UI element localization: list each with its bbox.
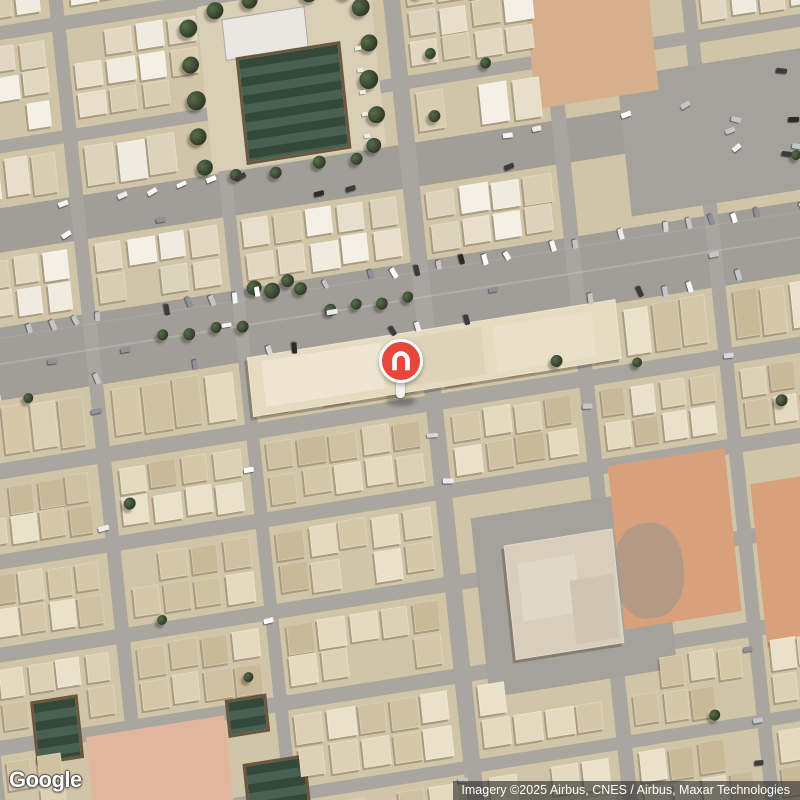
building <box>171 670 201 703</box>
building <box>398 788 428 800</box>
parked-car <box>788 117 799 122</box>
building <box>412 600 441 633</box>
building <box>361 734 392 768</box>
building <box>191 543 219 575</box>
building <box>316 615 347 649</box>
building <box>459 181 490 213</box>
building <box>19 40 46 70</box>
parked-car <box>95 312 100 322</box>
building <box>242 215 271 247</box>
parked-car <box>754 760 763 766</box>
building <box>405 540 436 572</box>
building <box>13 253 40 285</box>
building <box>371 514 401 548</box>
building <box>117 139 149 183</box>
building <box>109 84 138 112</box>
building <box>326 706 357 739</box>
building <box>393 731 424 765</box>
building <box>189 225 220 258</box>
building <box>414 633 443 667</box>
building <box>204 666 235 701</box>
building <box>119 464 148 494</box>
building <box>730 0 757 15</box>
building <box>94 240 123 272</box>
building <box>330 739 361 774</box>
building <box>431 220 462 252</box>
building <box>483 404 513 436</box>
building <box>679 294 709 346</box>
building <box>181 452 209 484</box>
building <box>143 80 172 108</box>
building <box>426 188 456 219</box>
building <box>297 435 328 466</box>
building <box>172 374 204 427</box>
building <box>512 76 542 121</box>
building <box>213 448 243 479</box>
tree <box>210 321 222 334</box>
building <box>160 263 189 294</box>
building <box>744 397 771 427</box>
building <box>389 696 420 731</box>
building <box>451 411 481 442</box>
building <box>700 0 728 22</box>
building <box>545 705 577 738</box>
building <box>22 68 50 96</box>
building <box>280 560 311 593</box>
building <box>664 688 691 722</box>
building <box>85 651 111 683</box>
building <box>310 240 341 273</box>
building <box>639 748 668 783</box>
building <box>396 453 426 485</box>
building <box>493 210 522 241</box>
tree <box>424 47 436 60</box>
building <box>790 279 800 329</box>
building <box>486 438 515 470</box>
building <box>481 716 512 748</box>
building <box>338 517 368 549</box>
parked-car <box>503 132 514 138</box>
building <box>454 443 484 475</box>
building <box>740 365 768 397</box>
tree <box>708 708 720 721</box>
building <box>479 81 511 125</box>
building <box>405 0 434 6</box>
mosque-roof-detail <box>570 574 620 645</box>
building <box>68 0 98 5</box>
building <box>336 201 365 233</box>
building <box>9 482 36 515</box>
building <box>158 229 186 259</box>
building <box>523 173 554 206</box>
building <box>278 243 307 274</box>
building <box>0 0 13 19</box>
building <box>163 579 192 612</box>
building <box>78 89 108 117</box>
building <box>373 228 403 261</box>
marker-circle[interactable] <box>379 339 423 383</box>
google-logo[interactable]: Google <box>9 767 82 793</box>
building <box>4 155 31 197</box>
building <box>78 594 105 627</box>
tree <box>350 297 362 310</box>
building <box>362 424 391 456</box>
building <box>0 517 9 547</box>
building <box>38 477 66 509</box>
building <box>513 711 544 745</box>
building <box>16 286 43 316</box>
building <box>158 547 189 579</box>
building <box>630 383 656 415</box>
building <box>660 377 686 408</box>
building <box>275 529 306 561</box>
building <box>717 646 744 680</box>
building <box>439 4 468 34</box>
building <box>147 132 179 175</box>
building <box>0 289 14 319</box>
tree <box>479 56 491 69</box>
building <box>87 684 116 717</box>
building <box>0 44 16 73</box>
building <box>663 409 689 441</box>
building <box>246 250 276 281</box>
building <box>287 621 316 655</box>
building <box>370 197 399 229</box>
tree <box>188 127 207 147</box>
building <box>669 745 696 781</box>
building <box>75 60 104 89</box>
building <box>505 24 535 53</box>
building <box>491 179 521 211</box>
building <box>548 428 579 459</box>
building <box>478 681 508 716</box>
building <box>225 571 256 606</box>
parked-car <box>292 342 297 354</box>
building <box>204 371 237 423</box>
parked-car <box>48 358 58 364</box>
home-icon <box>388 348 414 374</box>
parked-car <box>442 478 453 483</box>
building <box>111 385 143 437</box>
building <box>26 100 52 130</box>
building <box>28 661 57 694</box>
building <box>420 690 450 723</box>
building <box>659 654 685 687</box>
building <box>463 215 492 246</box>
building <box>605 420 633 451</box>
building <box>298 746 327 778</box>
parked-car <box>663 221 669 231</box>
building <box>106 55 137 84</box>
parked-car <box>583 404 593 409</box>
building <box>768 360 796 391</box>
building <box>231 628 261 661</box>
garden-court <box>225 694 270 738</box>
building <box>0 606 20 637</box>
building <box>1 402 31 454</box>
building <box>524 203 554 234</box>
building <box>139 50 167 80</box>
building <box>42 249 70 281</box>
building <box>514 401 543 433</box>
building <box>54 656 81 688</box>
building <box>311 558 342 593</box>
building <box>380 605 409 639</box>
parked-car <box>232 292 237 303</box>
building <box>269 472 298 505</box>
building <box>30 399 60 449</box>
tree <box>401 290 413 303</box>
building <box>40 507 67 539</box>
building <box>340 233 369 265</box>
tree <box>156 328 168 341</box>
building <box>0 666 25 699</box>
parked-car <box>776 68 787 74</box>
building <box>698 739 727 774</box>
parked-car <box>782 150 793 156</box>
building <box>47 281 73 312</box>
building <box>289 653 320 687</box>
satellite-map-viewport[interactable]: Google Imagery ©2025 Airbus, CNES / Airb… <box>0 0 800 800</box>
building <box>193 258 222 288</box>
building <box>104 25 133 54</box>
imagery-attribution: Imagery ©2025 Airbus, CNES / Airbus, Max… <box>453 781 800 800</box>
building <box>544 395 573 427</box>
building <box>350 611 380 643</box>
building <box>305 206 334 237</box>
building <box>135 20 165 50</box>
building <box>0 573 18 605</box>
building <box>652 299 682 351</box>
building <box>17 569 45 603</box>
building <box>69 504 95 536</box>
building <box>201 634 230 667</box>
building <box>474 28 503 58</box>
building <box>423 725 454 760</box>
building <box>84 142 116 186</box>
building <box>328 431 359 462</box>
building <box>733 287 762 338</box>
building <box>334 461 364 493</box>
building <box>409 7 438 35</box>
building <box>515 431 546 463</box>
building <box>31 152 59 196</box>
building <box>689 373 717 404</box>
building <box>772 671 799 703</box>
building <box>321 648 350 681</box>
building <box>3 699 31 731</box>
building <box>185 484 213 515</box>
building <box>47 565 74 598</box>
building <box>601 386 627 417</box>
building <box>75 561 101 592</box>
building <box>374 548 404 583</box>
tree <box>791 149 800 161</box>
building <box>758 0 785 13</box>
building <box>393 420 422 450</box>
building <box>634 415 660 446</box>
building <box>576 701 605 733</box>
building <box>632 692 661 725</box>
building <box>127 235 158 266</box>
building <box>137 644 168 679</box>
building <box>64 472 90 504</box>
building <box>472 0 503 25</box>
building <box>689 648 717 680</box>
building <box>779 727 800 763</box>
building <box>365 455 395 486</box>
building <box>11 512 40 545</box>
building <box>788 0 800 6</box>
building <box>98 272 127 304</box>
building <box>273 210 304 243</box>
building <box>14 0 41 16</box>
park-soccer-field <box>235 41 351 165</box>
building <box>266 439 295 469</box>
building <box>169 637 199 669</box>
building <box>0 159 3 202</box>
building <box>194 576 223 608</box>
building <box>153 491 183 522</box>
building <box>403 507 434 540</box>
building <box>760 284 789 334</box>
building <box>223 537 253 571</box>
building <box>690 404 717 436</box>
building <box>308 522 339 557</box>
building <box>132 584 161 617</box>
building <box>141 677 172 711</box>
building <box>624 306 652 356</box>
building <box>302 465 332 495</box>
building <box>142 380 175 433</box>
building <box>436 0 466 2</box>
building <box>0 75 21 103</box>
building <box>0 259 11 289</box>
building <box>770 636 799 671</box>
parked-car <box>724 353 734 359</box>
building <box>358 701 388 734</box>
building <box>148 458 177 489</box>
building <box>20 601 48 634</box>
building <box>442 31 471 59</box>
building <box>58 396 87 449</box>
building <box>294 711 324 746</box>
building <box>215 482 245 515</box>
dirt-lot-sand <box>524 0 659 109</box>
building <box>50 598 78 630</box>
